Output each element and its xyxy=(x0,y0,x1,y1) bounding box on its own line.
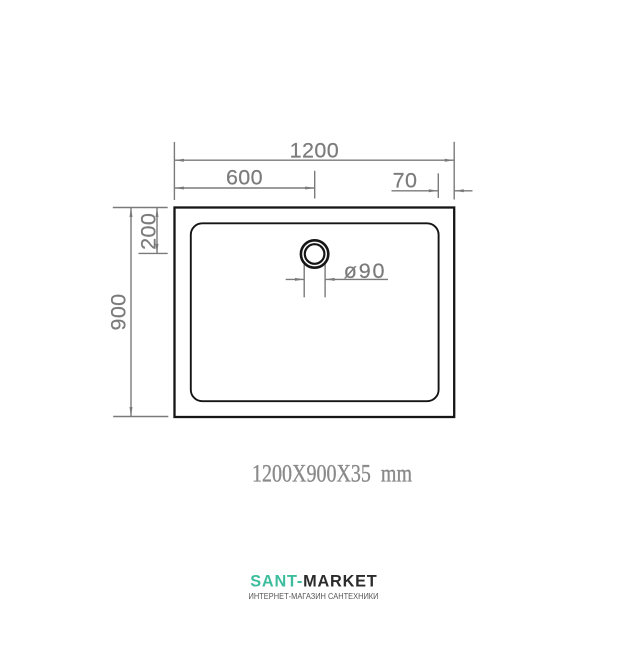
svg-text:70: 70 xyxy=(393,169,418,193)
svg-text:900: 900 xyxy=(106,293,130,330)
svg-text:200: 200 xyxy=(136,213,160,250)
svg-text:1200: 1200 xyxy=(290,139,339,163)
svg-text:ø90: ø90 xyxy=(344,259,386,283)
svg-text:1200X900X35 mm: 1200X900X35 mm xyxy=(252,461,412,488)
svg-text:ИНТЕРНЕТ-МАГАЗИН САНТЕХНИКИ: ИНТЕРНЕТ-МАГАЗИН САНТЕХНИКИ xyxy=(249,591,379,601)
svg-text:600: 600 xyxy=(226,166,263,190)
svg-text:SANT-MARKET: SANT-MARKET xyxy=(250,572,377,590)
